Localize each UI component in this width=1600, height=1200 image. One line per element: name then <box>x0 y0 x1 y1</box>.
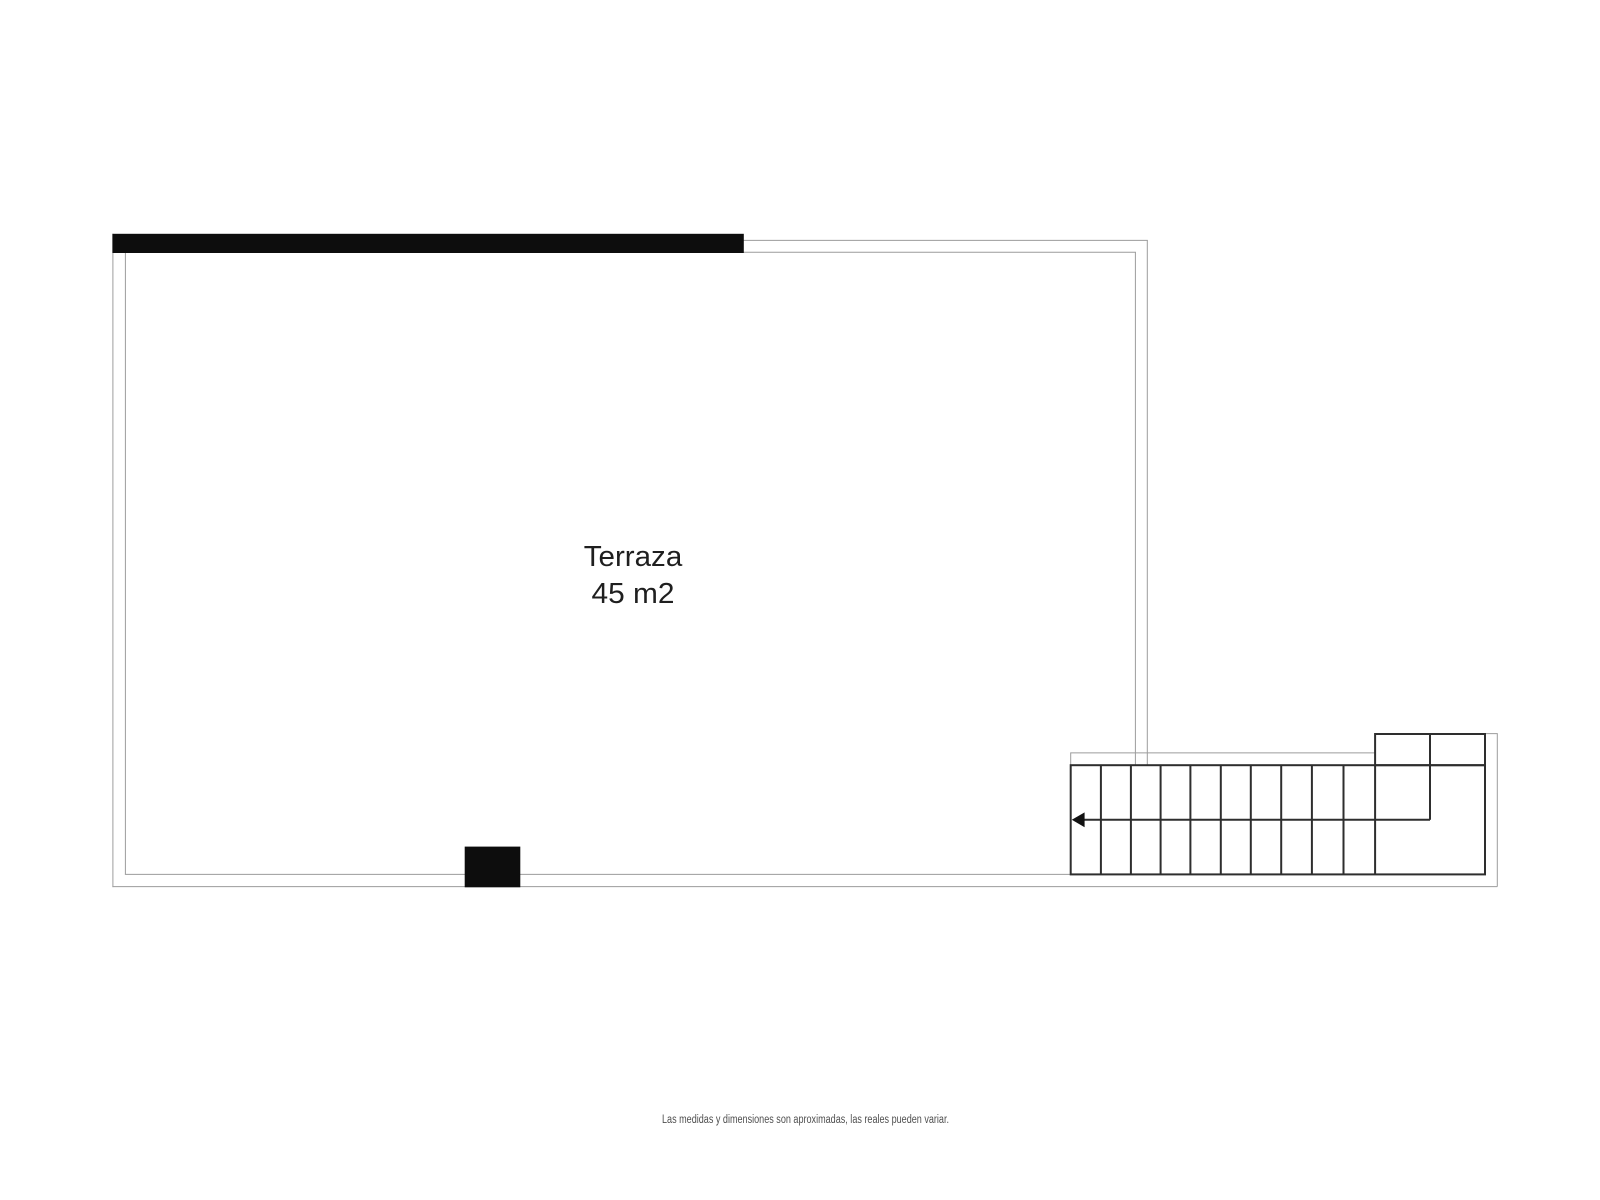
svg-text:45 m2: 45 m2 <box>592 578 675 610</box>
svg-text:Las medidas y dimensiones son: Las medidas y dimensiones son aproximada… <box>662 1114 949 1126</box>
svg-text:Terraza: Terraza <box>584 541 683 573</box>
